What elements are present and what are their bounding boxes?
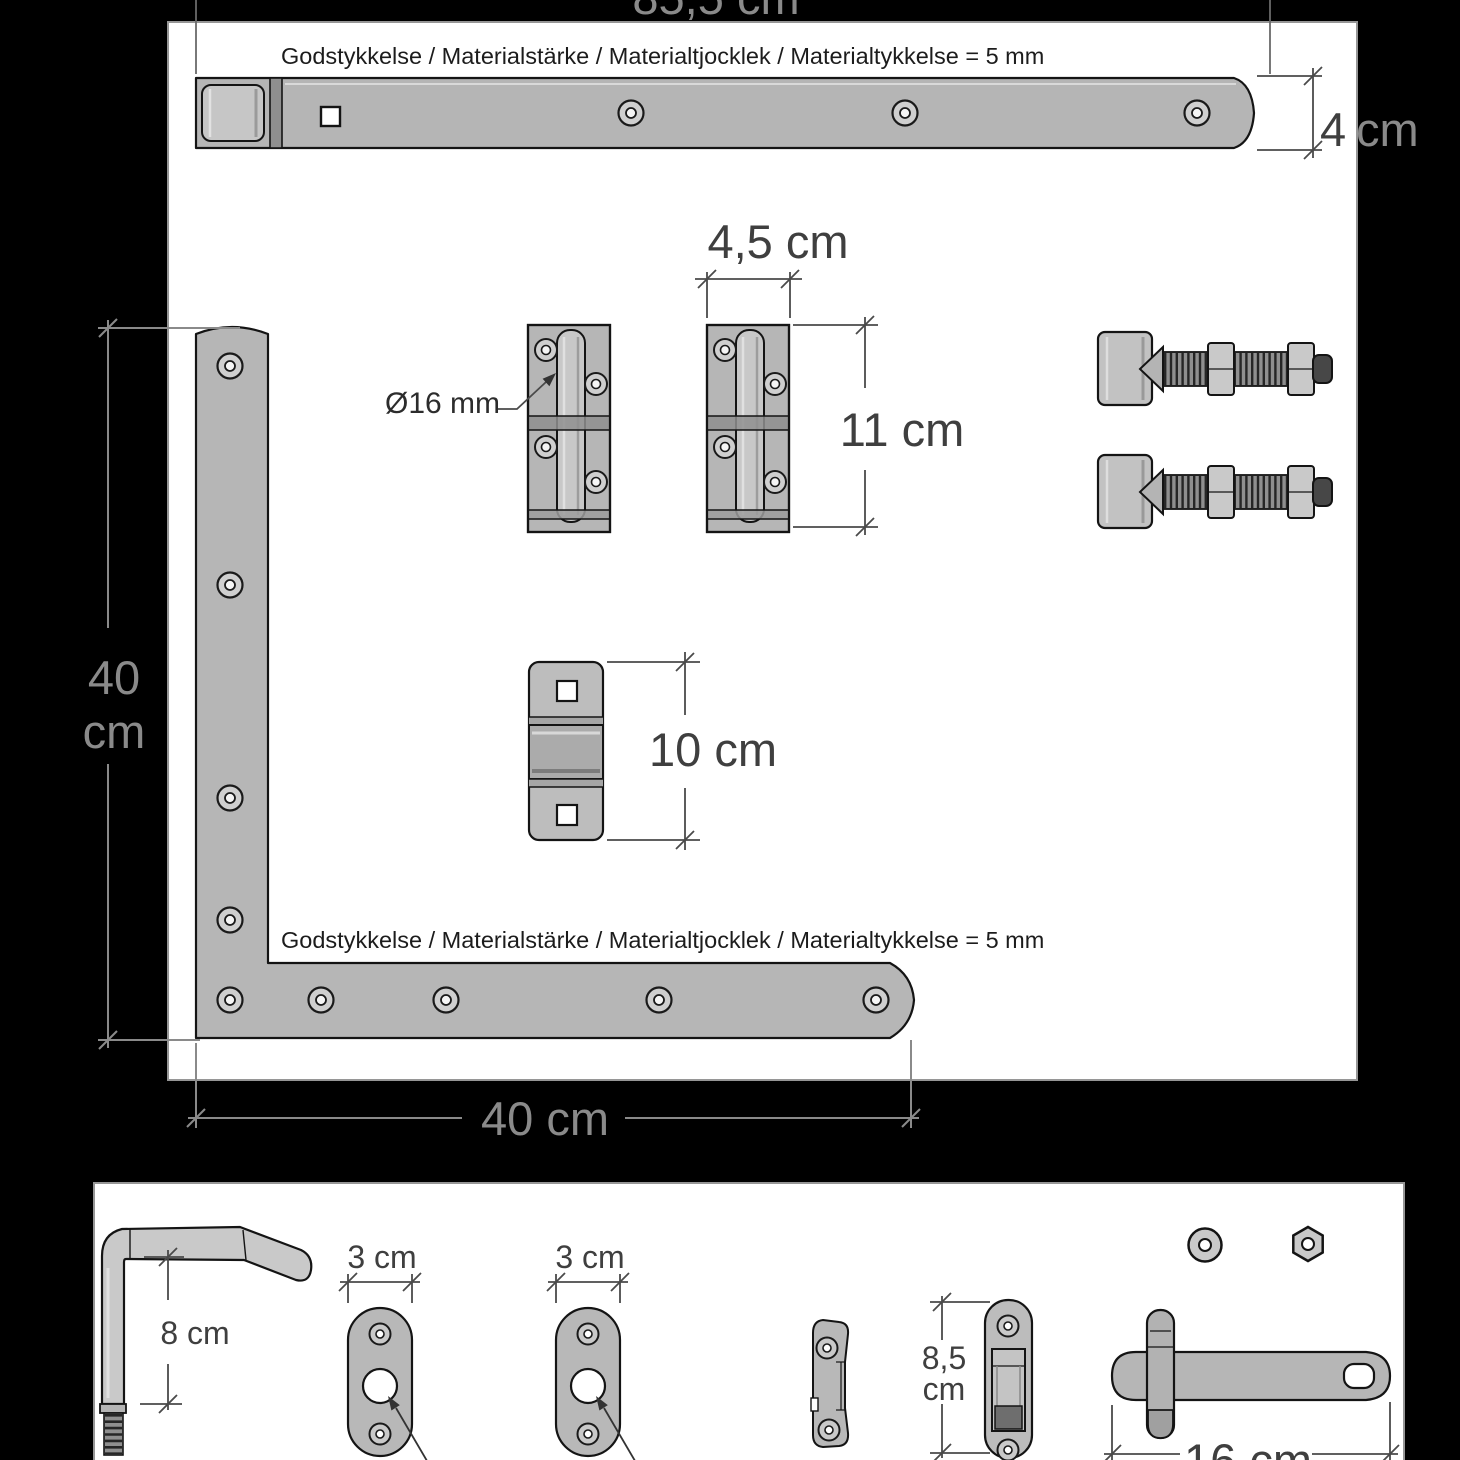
slot-hole [1344, 1364, 1374, 1388]
strap-hinge [196, 78, 1254, 148]
screw-hole [218, 908, 243, 933]
adjustable-hinge-bolt-top [1098, 332, 1332, 405]
washer [1189, 1229, 1222, 1262]
band-hinge-right [707, 325, 789, 532]
notch [811, 1398, 818, 1411]
hinge-height-label: 11 cm [840, 403, 965, 456]
screw-hole [998, 1440, 1019, 1460]
screw-hole [218, 786, 243, 811]
latch-keeper-height-unit: cm [923, 1371, 966, 1407]
main-panel [168, 22, 1357, 1080]
plate-width-2-label: 3 cm [555, 1239, 624, 1275]
screw-hole [647, 988, 672, 1013]
bracket-height-value: 40 [88, 651, 140, 704]
pin-diameter-label: Ø16 mm [385, 387, 500, 420]
adjustable-hinge-bolt-bottom [1098, 455, 1332, 528]
material-note-bottom: Godstykkelse / Materialstärke / Material… [281, 927, 1044, 953]
latch-keeper-side [811, 1320, 848, 1447]
screw-hole [619, 101, 644, 126]
technical-drawing: 85,5 cm 4 cm Godstykkelse / Materialstär… [0, 0, 1460, 1460]
screw-hole [309, 988, 334, 1013]
latch-keeper-front [985, 1300, 1032, 1460]
screw-hole [370, 1424, 391, 1445]
screw-hole [578, 1424, 599, 1445]
screw-hole [370, 1324, 391, 1345]
screw-hole [218, 988, 243, 1013]
bracket-height-unit: cm [83, 705, 146, 758]
square-hole [557, 681, 577, 701]
center-hole [363, 1369, 397, 1403]
drawing-stage: 85,5 cm 4 cm Godstykkelse / Materialstär… [0, 0, 1460, 1460]
bottom-panel [94, 1183, 1404, 1460]
keeper-plate [529, 662, 603, 840]
plate-width-1-label: 3 cm [347, 1239, 416, 1275]
screw-hole [218, 354, 243, 379]
screw-hole [578, 1324, 599, 1345]
material-note-top: Godstykkelse / Materialstärke / Material… [281, 43, 1044, 69]
square-hole [557, 805, 577, 825]
screw-hole [819, 1420, 840, 1441]
screw-hole [998, 1316, 1019, 1337]
strap-width-unit: cm [1356, 103, 1419, 156]
screw-hole [893, 101, 918, 126]
center-hole [571, 1369, 605, 1403]
hinge-width-label: 4,5 cm [707, 215, 848, 268]
band-hinge-left [528, 325, 610, 532]
screw-hole [434, 988, 459, 1013]
screw-hole [817, 1338, 838, 1359]
strap-width-value: 4 [1320, 103, 1346, 156]
bracket-width-label: 40 cm [481, 1092, 609, 1145]
keeper-height-label: 10 cm [649, 723, 777, 776]
screw-hole [1185, 101, 1210, 126]
pin-length-label: 8 cm [160, 1315, 229, 1351]
screw-hole [218, 573, 243, 598]
screw-hole [864, 988, 889, 1013]
strap-length-label: 85,5 cm [632, 0, 799, 24]
latch-length-label: 16 cm [1184, 1434, 1312, 1460]
square-hole [321, 107, 340, 126]
hex-nut [1293, 1227, 1322, 1261]
